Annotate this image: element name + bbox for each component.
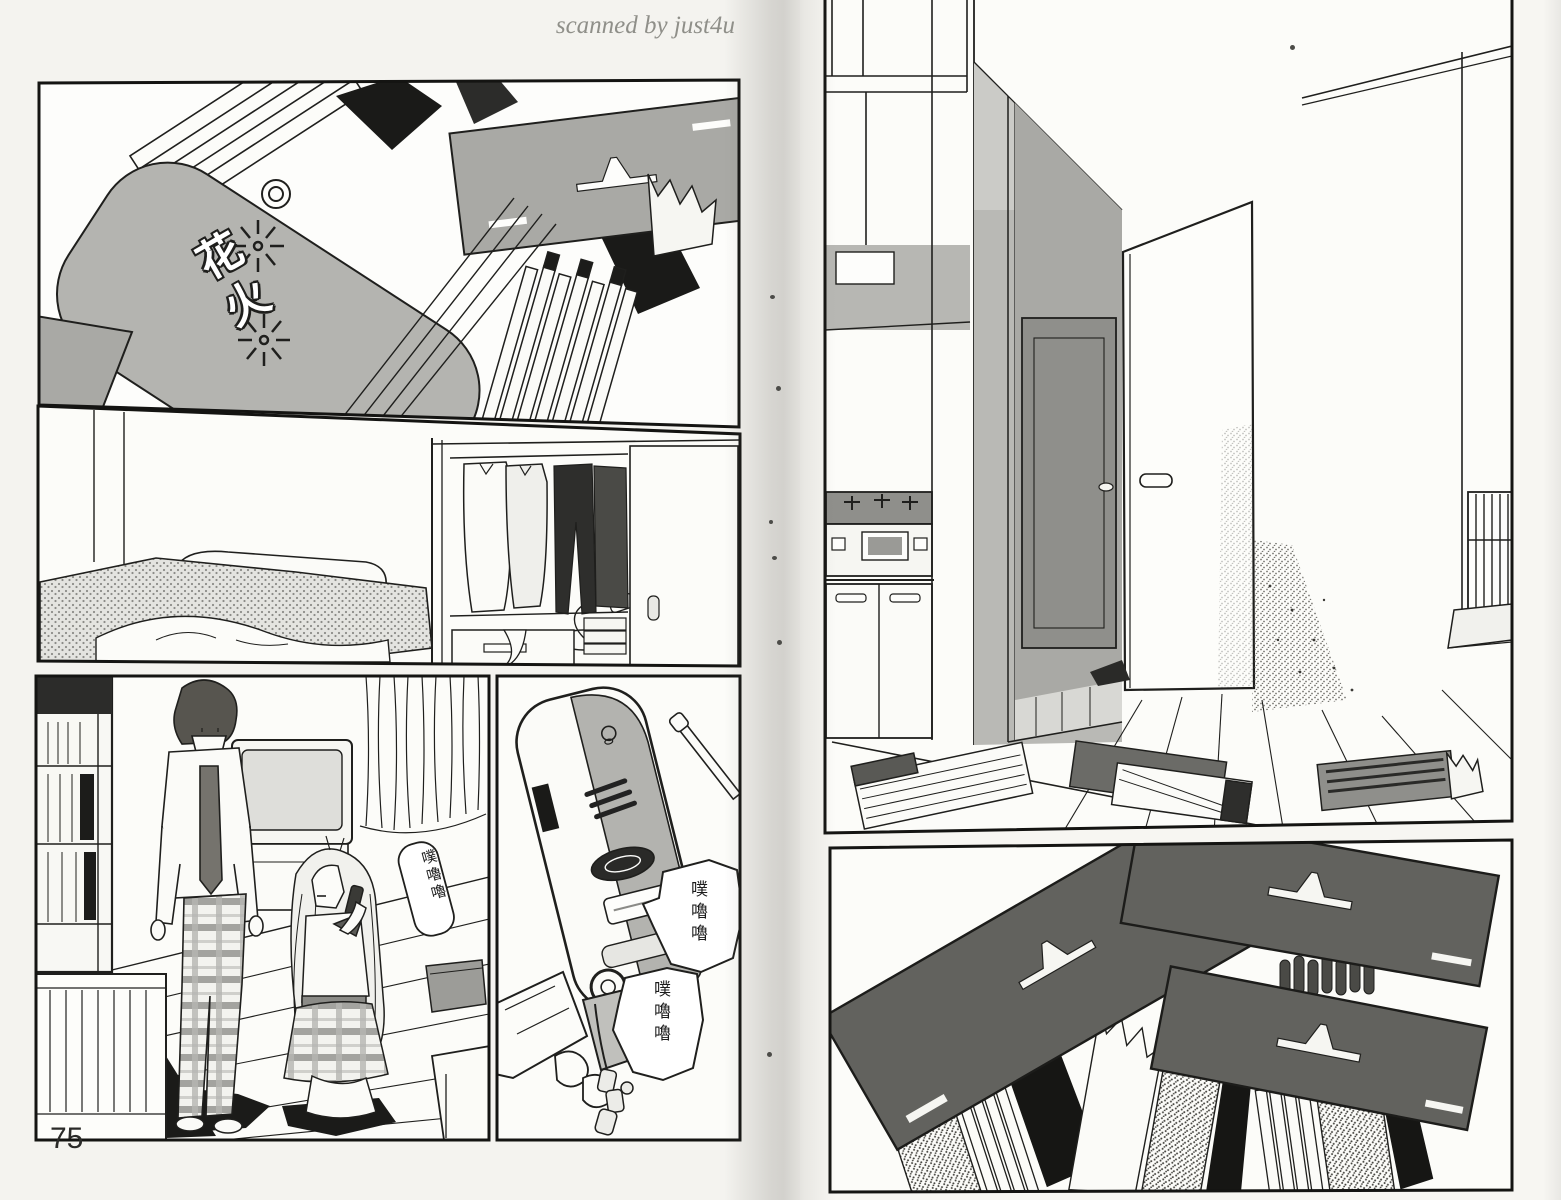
panel-fireworks-closeup [36, 78, 742, 430]
panel-apartment-hallway [822, 0, 1516, 840]
panel-bedroom [36, 400, 742, 670]
dust-speck [776, 386, 781, 391]
page-edge-shade [1543, 0, 1561, 1200]
scanned-manga-spread: scanned by just4u 75 花火 噗嚕嚕 噗嚕嚕 噗嚕嚕 [0, 0, 1561, 1200]
panel-room-couple [34, 674, 492, 1144]
dust-speck [772, 556, 777, 560]
scan-watermark: scanned by just4u [400, 12, 735, 40]
dust-speck [1290, 45, 1295, 50]
dust-speck [770, 295, 775, 299]
page-gutter [724, 0, 836, 1200]
sfx-bubble-phone-1: 噗嚕嚕 [685, 880, 710, 946]
sfx-bubble-phone-2: 噗嚕嚕 [648, 980, 673, 1046]
dust-speck [777, 640, 782, 645]
panel-fireworks-packages [828, 838, 1516, 1196]
dust-speck [767, 1052, 772, 1057]
dust-speck [769, 520, 773, 524]
page-number: 75 [50, 1122, 83, 1156]
